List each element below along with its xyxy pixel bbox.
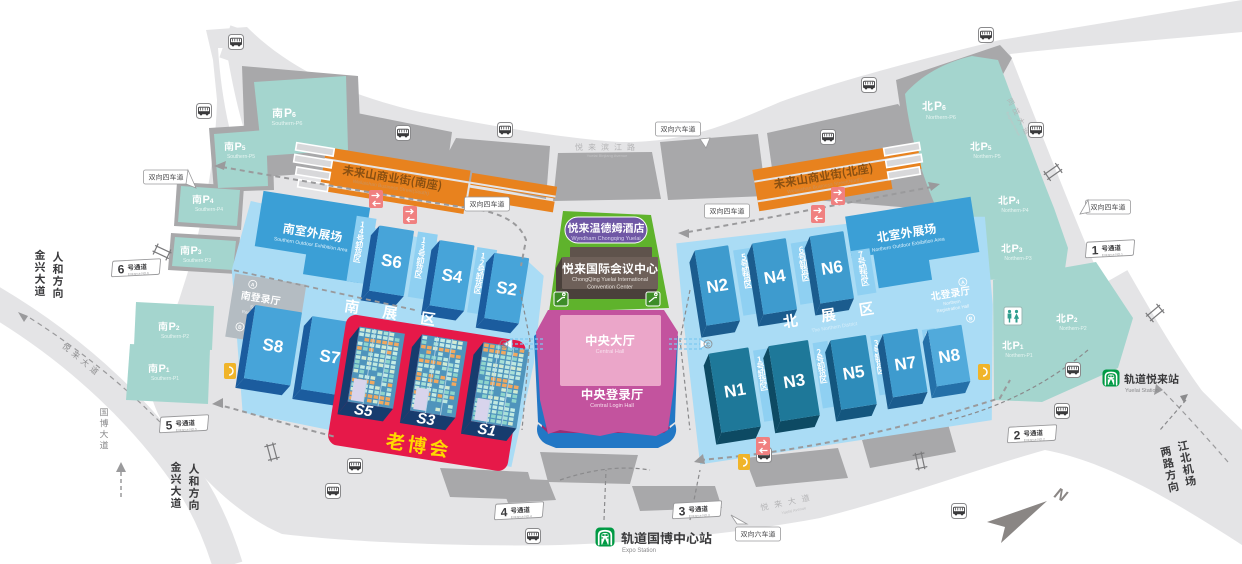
svg-text:Central Hall: Central Hall [596,349,625,355]
svg-text:Southern-P4: Southern-P4 [195,207,223,213]
svg-text:Northern-P4: Northern-P4 [1001,208,1028,214]
svg-text:N5: N5 [841,362,865,384]
svg-text:N2: N2 [705,275,729,297]
svg-text:N8: N8 [937,345,961,367]
svg-text:N1: N1 [723,380,747,402]
svg-text:Southern-P2: Southern-P2 [161,334,189,340]
svg-text:S3: S3 [415,410,436,430]
svg-text:Southern-P1: Southern-P1 [151,376,179,382]
svg-text:S5: S5 [353,401,374,421]
svg-text:Yuelai Binjiang Avenue: Yuelai Binjiang Avenue [587,153,628,158]
svg-text:6: 6 [117,262,125,276]
svg-text:2: 2 [1013,428,1021,442]
svg-text:N4: N4 [762,266,787,288]
svg-text:4: 4 [500,505,508,519]
svg-text:Southern-P3: Southern-P3 [183,258,211,264]
svg-text:C: C [502,343,506,349]
svg-text:Northern-P6: Northern-P6 [926,115,956,121]
svg-text:S2: S2 [495,278,519,300]
svg-text:Southern-P5: Southern-P5 [227,154,255,160]
svg-text:1: 1 [1091,243,1099,257]
svg-text:Convention Center: Convention Center [587,285,633,291]
svg-text:Yuelai Station: Yuelai Station [1125,388,1159,394]
svg-text:S4: S4 [440,265,464,287]
svg-text:ChongQing Yuelai International: ChongQing Yuelai International [572,277,648,283]
svg-text:5: 5 [165,418,173,432]
svg-text:N7: N7 [893,353,917,375]
svg-text:S1: S1 [476,420,497,440]
svg-text:Southern-P6: Southern-P6 [272,121,303,127]
svg-text:Northern-P3: Northern-P3 [1004,256,1031,262]
svg-text:C: C [706,343,710,349]
svg-text:Northern-P2: Northern-P2 [1059,326,1086,332]
svg-text:S6: S6 [380,250,404,272]
svg-text:S7: S7 [318,346,342,368]
svg-text:N6: N6 [820,257,844,279]
svg-text:Wyndham Chongqing Yuelai: Wyndham Chongqing Yuelai [571,236,640,242]
svg-text:Central Login Hall: Central Login Hall [590,403,634,409]
svg-text:Expo Station: Expo Station [622,548,656,554]
svg-text:N3: N3 [782,370,806,392]
svg-text:Northern-P1: Northern-P1 [1005,353,1032,359]
svg-text:3: 3 [678,504,686,518]
svg-text:Northern-P5: Northern-P5 [973,154,1000,160]
svg-text:S8: S8 [261,335,285,357]
